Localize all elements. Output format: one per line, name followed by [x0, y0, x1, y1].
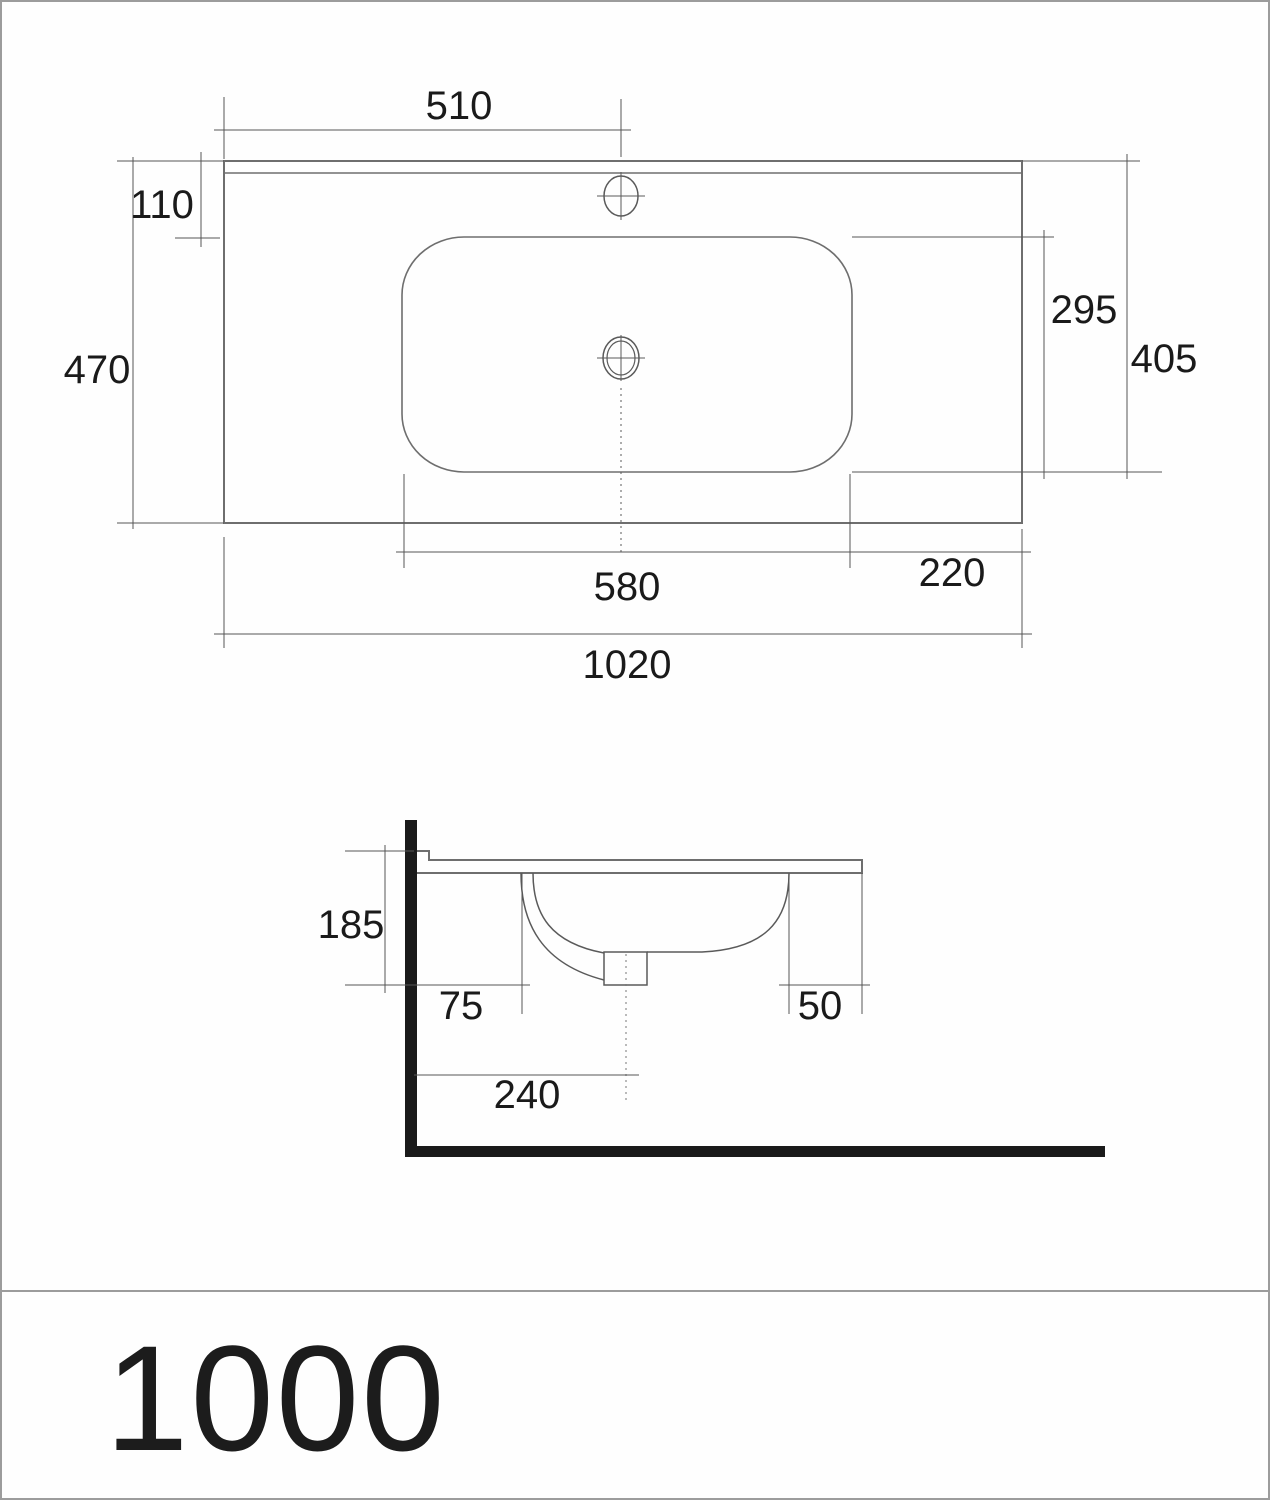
dim-faucet-offset-label: 510: [426, 84, 493, 128]
dim-basin-inner-depth-label: 295: [1051, 288, 1118, 332]
dim-overall-depth-label: 470: [64, 348, 131, 392]
drain-fitting: [604, 952, 647, 985]
wall-section: [405, 820, 417, 1157]
dim-bowl-to-front-edge-label: 50: [798, 984, 843, 1028]
drawing-canvas: 510 110 470 295 405 580 220 1020: [2, 2, 1268, 1290]
dim-overall-width-label: 1020: [583, 643, 672, 687]
dim-bowl-height-label: 185: [318, 903, 385, 947]
model-size-title: 1000: [105, 1323, 447, 1473]
dim-rim-to-basin-front-label: 405: [1131, 337, 1198, 381]
drawing-sheet: 510 110 470 295 405 580 220 1020: [0, 0, 1270, 1500]
dim-wall-to-drain-label: 240: [494, 1073, 561, 1117]
floor-section: [405, 1146, 1105, 1157]
dim-basin-inner-width-label: 580: [594, 565, 661, 609]
dim-basin-to-right-edge-label: 220: [919, 551, 986, 595]
technical-drawing: 510 110 470 295 405 580 220 1020: [2, 2, 1268, 1290]
side-dimension-labels: 185 75 50 240: [318, 903, 843, 1117]
drain-hole-icon: [597, 335, 645, 552]
faucet-hole-icon: [597, 172, 645, 220]
bowl-section: [521, 873, 789, 980]
dim-rim-to-basin-label: 110: [130, 183, 194, 227]
side-dimension-lines: [345, 845, 870, 1075]
dim-wall-to-bowl-label: 75: [439, 984, 484, 1028]
title-band: 1000: [2, 1290, 1268, 1498]
countertop-section: [417, 851, 862, 873]
plan-dimension-labels: 510 110 470 295 405 580 220 1020: [64, 84, 1198, 687]
basin-outline: [402, 237, 852, 472]
